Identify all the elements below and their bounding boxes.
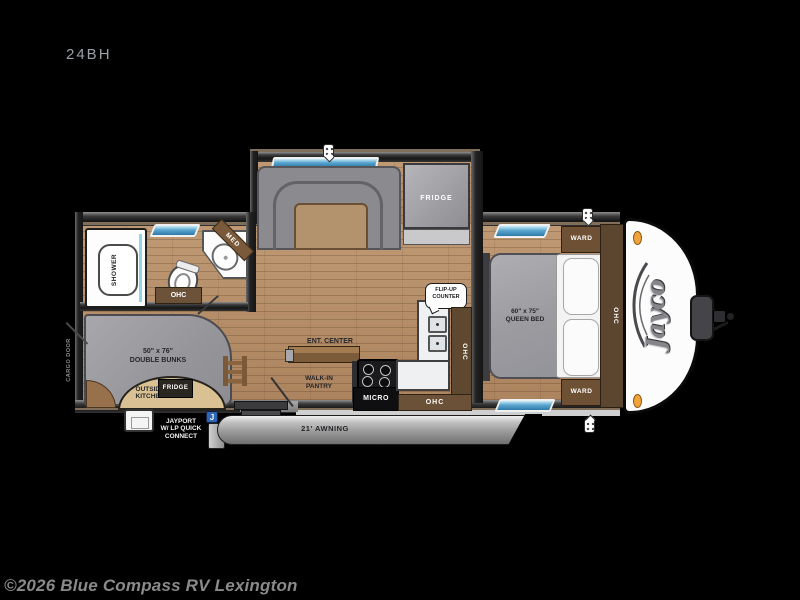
hitch-ball bbox=[726, 312, 735, 321]
bathroom-window bbox=[149, 224, 200, 237]
marker-light-icon bbox=[633, 231, 642, 245]
cargo-door-label: CARGO DOOR bbox=[66, 330, 76, 390]
entry-steps bbox=[234, 401, 288, 410]
speaker-pin-icon bbox=[323, 144, 334, 158]
bunk-label: 50" x 76" DOUBLE BUNKS bbox=[102, 348, 214, 366]
cooktop bbox=[357, 359, 399, 389]
jayco-logo: Jayco bbox=[642, 260, 670, 370]
wardrobe-top: WARD bbox=[561, 226, 602, 253]
dealer-watermark: ©2026 Blue Compass RV Lexington bbox=[4, 576, 298, 596]
ohc-label: OHC bbox=[607, 286, 619, 346]
kitchen-counter bbox=[396, 360, 450, 391]
outside-fridge-label: FRIDGE bbox=[159, 380, 192, 391]
speaker-pin-icon bbox=[584, 419, 595, 433]
model-number: 24BH bbox=[66, 46, 112, 63]
refrigerator-base bbox=[403, 229, 470, 245]
propane-tank-cover bbox=[690, 295, 714, 341]
ohc-label: OHC bbox=[399, 395, 471, 406]
queen-bed-label: 60" x 75" QUEEN BED bbox=[492, 308, 558, 324]
burner-icon bbox=[380, 365, 391, 376]
burner-icon bbox=[363, 364, 374, 375]
bedroom-window-top bbox=[493, 224, 551, 238]
wall-rear bbox=[75, 212, 83, 412]
walk-in-pantry-label: WALK-IN PANTRY bbox=[294, 375, 344, 391]
outside-fridge: FRIDGE bbox=[158, 379, 193, 398]
ward-label: WARD bbox=[562, 227, 601, 242]
micro-label: MICRO bbox=[354, 388, 398, 402]
dinette-table bbox=[294, 203, 368, 250]
kitchen-sink-bowl bbox=[428, 316, 447, 333]
ohc-label: OHC bbox=[156, 288, 201, 299]
wall-galley-bedroom bbox=[471, 151, 483, 403]
kitchen-sink-bowl bbox=[428, 335, 447, 352]
fridge-label: FRIDGE bbox=[405, 165, 468, 202]
awning bbox=[217, 415, 539, 445]
ohc-label: OHC bbox=[456, 322, 468, 382]
shower-glass bbox=[139, 234, 142, 302]
bedroom-window-bottom bbox=[494, 399, 555, 412]
pillow bbox=[563, 319, 599, 376]
microwave: MICRO bbox=[353, 387, 399, 411]
floorplan-screenshot: 24BH SHOWER OHC MED 50" x 76" DOUBLE BUN… bbox=[0, 0, 800, 600]
marker-light-icon bbox=[633, 394, 642, 408]
refrigerator: FRIDGE bbox=[403, 163, 470, 229]
jayport-label: JAYPORT W/ LP QUICK CONNECT bbox=[148, 418, 214, 440]
flip-up-counter-callout: FLIP-UP COUNTER bbox=[425, 283, 467, 309]
galley-overhead-cabinet-bottom: OHC bbox=[398, 394, 472, 411]
wardrobe-bottom: WARD bbox=[561, 379, 602, 406]
entertainment-center bbox=[288, 346, 360, 363]
bunk-ladder bbox=[223, 356, 247, 386]
hitch-coupler bbox=[713, 310, 726, 323]
burner-icon bbox=[362, 376, 373, 387]
shower-label: SHOWER bbox=[111, 245, 123, 295]
speaker-pin-icon bbox=[582, 208, 593, 222]
tv bbox=[285, 349, 294, 362]
awning-label: 21' AWNING bbox=[280, 424, 370, 433]
bathroom-overhead-cabinet: OHC bbox=[155, 287, 202, 304]
ward-label: WARD bbox=[562, 380, 601, 395]
pillow bbox=[563, 258, 599, 315]
